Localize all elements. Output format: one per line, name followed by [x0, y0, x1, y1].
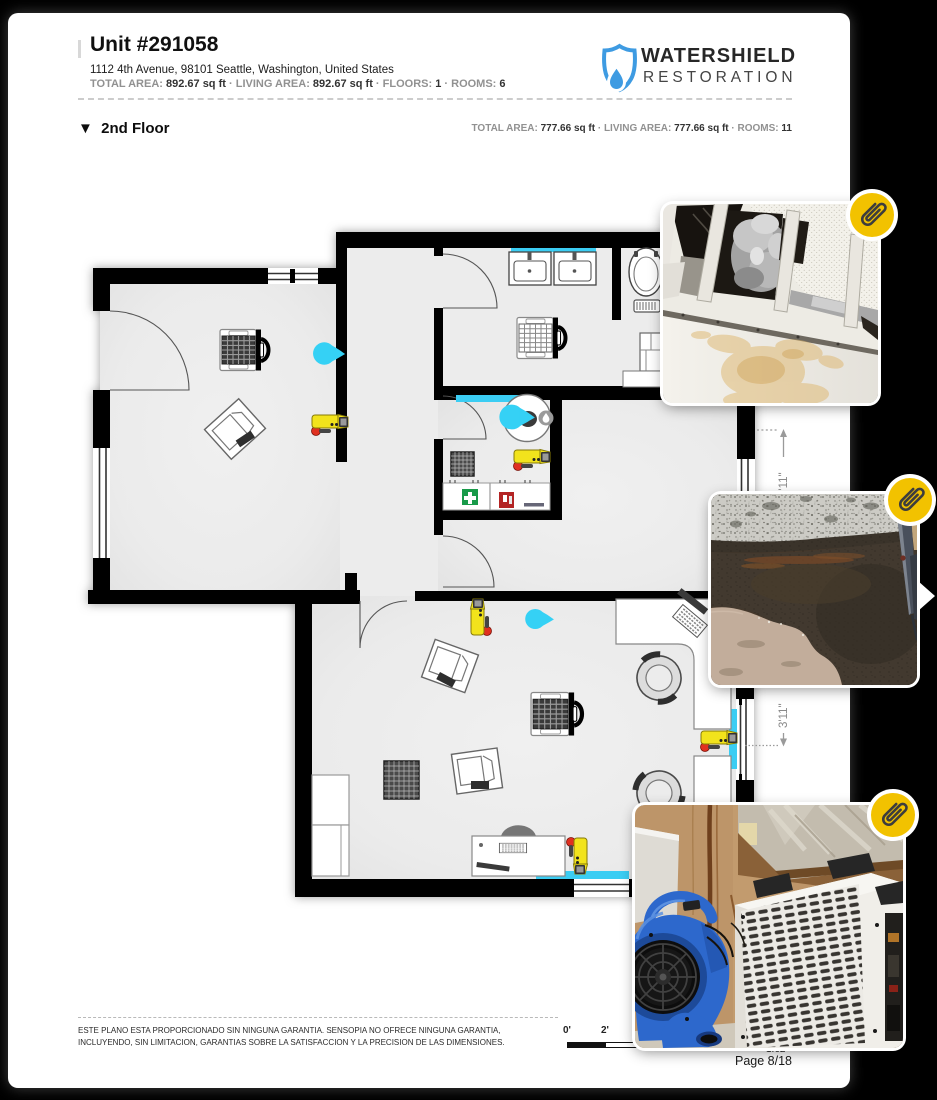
svg-text:3'11": 3'11" — [778, 703, 790, 728]
